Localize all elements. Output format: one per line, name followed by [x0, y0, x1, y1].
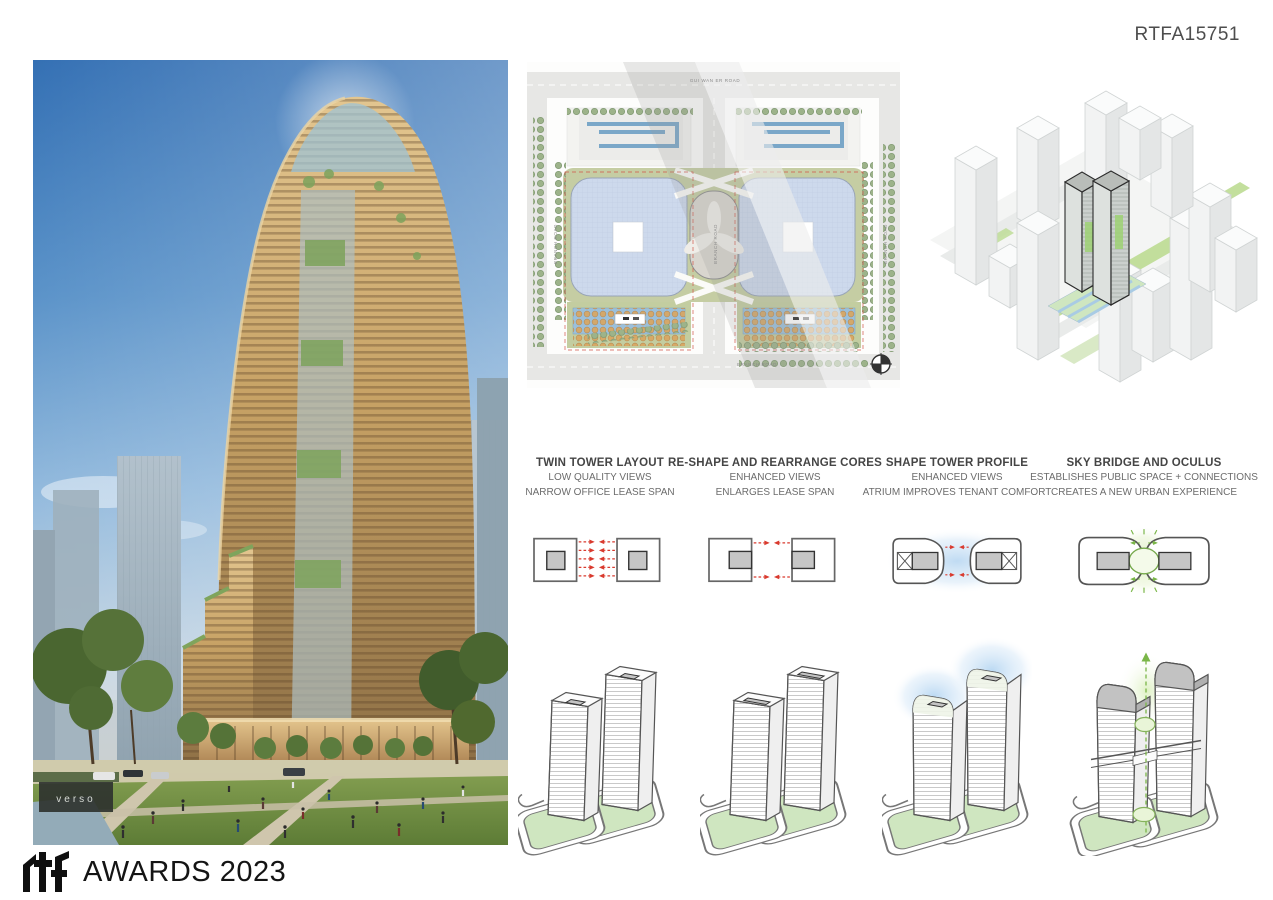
core: [729, 551, 751, 568]
road-label-bottom: BRANCH ROAD: [737, 362, 777, 367]
massing-diagram-1: [518, 616, 668, 856]
hero-rendering: verso: [33, 60, 508, 845]
gray-cap: [1097, 684, 1136, 712]
road-label-left: BRANCH ROAD: [553, 224, 558, 264]
core: [1159, 552, 1191, 569]
core: [613, 222, 643, 252]
footer-awards-text: AWARDS 2023: [83, 856, 286, 889]
plan-diagram-2: [700, 528, 850, 594]
project-towers: [1065, 171, 1129, 305]
path-hook: [1073, 797, 1099, 809]
towers: [548, 667, 656, 821]
path-hook: [882, 795, 908, 807]
plan-diagram-1: [525, 528, 675, 594]
massing-diagram-2: [700, 616, 850, 856]
plan-diagram-4: [1069, 528, 1219, 594]
footer: AWARDS 2023: [22, 851, 286, 893]
storefront: verso: [39, 782, 113, 812]
core: [912, 552, 938, 569]
towers: [730, 667, 838, 821]
road-label-center: BRANCH ROAD: [713, 224, 718, 264]
road-label-top: GUI WAN ER ROAD: [690, 78, 740, 83]
context-axonometric: [910, 60, 1273, 390]
step-line: CREATES A NEW URBAN EXPERIENCE: [1024, 486, 1264, 501]
road-label-right: BRANCH ROAD: [883, 224, 888, 264]
step-title: SKY BRIDGE AND OCULUS: [1024, 456, 1264, 471]
submission-code: RTFA15751: [1134, 24, 1240, 46]
gray-cap: [1155, 662, 1194, 690]
massing-diagram-4: [1069, 616, 1219, 856]
view-arrows: [754, 541, 790, 580]
awards-board: RTFA15751: [0, 0, 1273, 900]
core: [792, 551, 814, 568]
oculus: [1129, 548, 1159, 574]
rtf-logo-icon: [22, 851, 70, 893]
path-hook: [700, 795, 726, 807]
step-4-text: SKY BRIDGE AND OCULUS ESTABLISHES PUBLIC…: [1024, 456, 1264, 500]
core: [629, 551, 647, 569]
step-line: ESTABLISHES PUBLIC SPACE + CONNECTIONS: [1024, 471, 1264, 486]
core: [547, 551, 565, 569]
core: [976, 552, 1002, 569]
storefront-sign: verso: [56, 794, 95, 805]
plan-diagram-3: [882, 528, 1032, 594]
site-plan-drawing: GUI WAN ER ROAD BRANCH ROAD BRANCH ROAD …: [527, 62, 900, 388]
path-hook: [518, 795, 544, 807]
view-arrows: [579, 539, 615, 578]
massing-diagram-3: [882, 616, 1032, 856]
core: [1097, 552, 1129, 569]
